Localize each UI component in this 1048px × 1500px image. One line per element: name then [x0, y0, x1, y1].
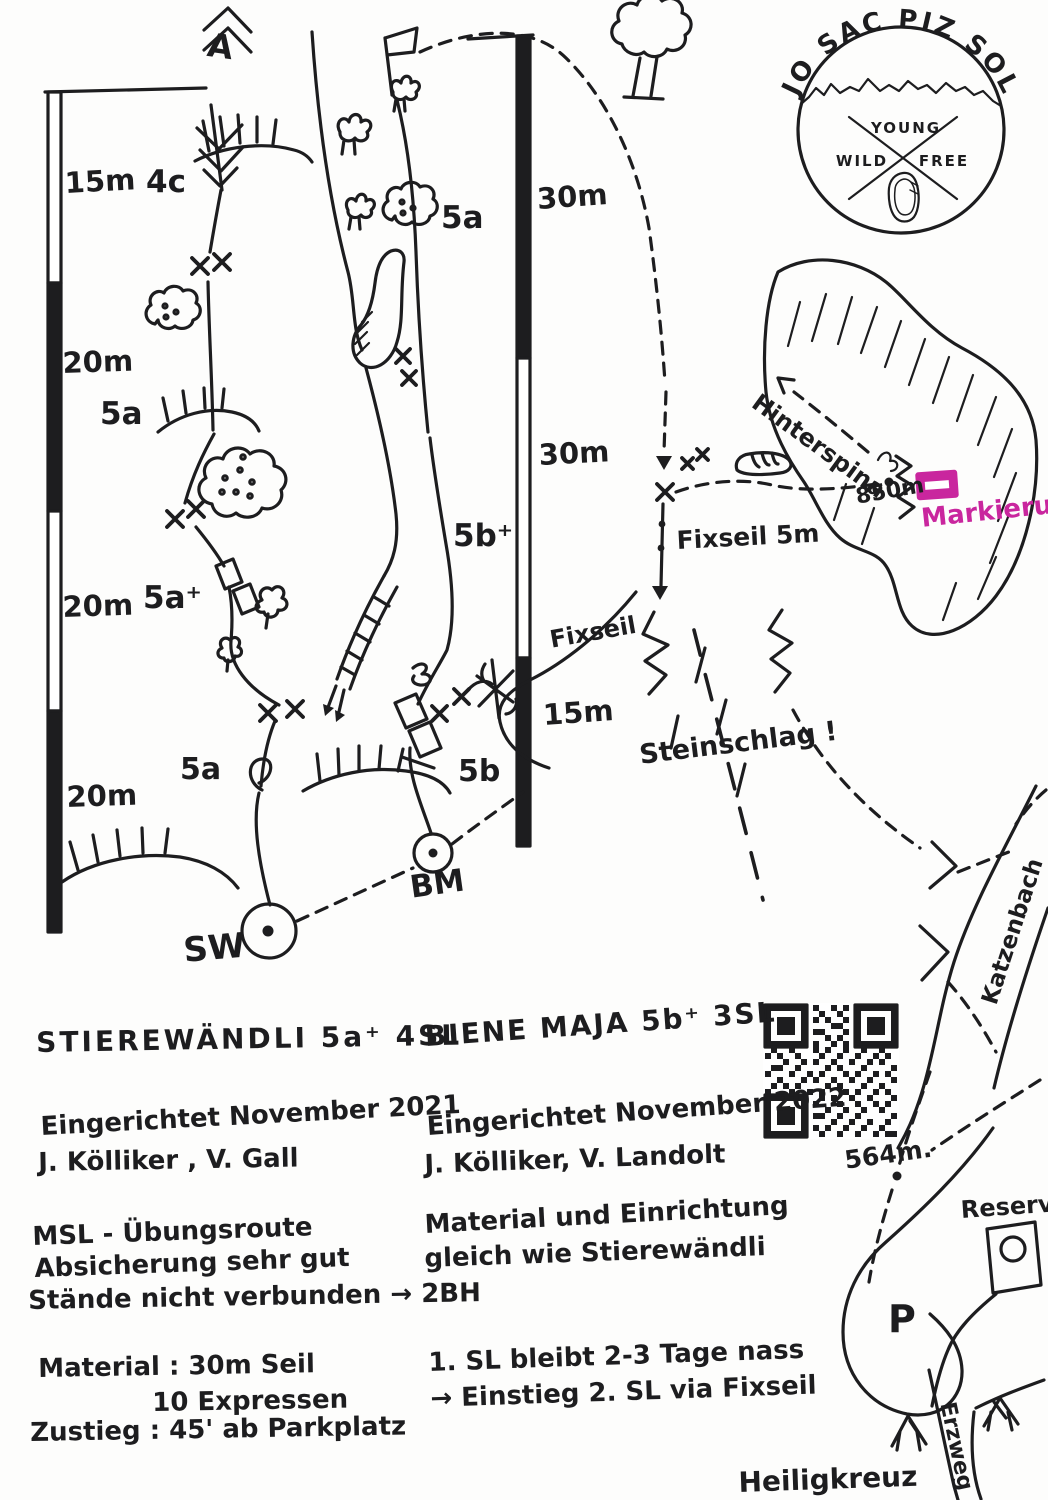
katzenbach-stream	[898, 786, 1048, 1148]
route-start-label-bm: BM	[408, 864, 466, 904]
scale-left-label-3: 20m	[62, 590, 134, 623]
scale-left-label-1: 15m	[64, 164, 136, 198]
fixed-rope-5m	[652, 504, 668, 600]
logo-wild-text: WILD	[836, 152, 888, 170]
route-line-stierewaendli	[185, 190, 279, 905]
grade-label-5b-plus: 5b⁺	[453, 520, 513, 553]
squiggle-mark	[413, 664, 431, 685]
flower-icon	[218, 587, 287, 671]
club-logo: JO SAC PIZ SOL YOUNG WILD FREE	[776, 5, 1026, 233]
approach-dashed-base	[297, 792, 523, 921]
stierewaendli-title: STIEREWÄNDLI 5a⁺ 4SL	[36, 1021, 462, 1058]
dead-tree-icon	[468, 660, 516, 718]
logo-free-text: FREE	[919, 152, 969, 170]
reservoir-icon	[987, 1222, 1041, 1293]
grass-ledge-bottom-left	[62, 828, 238, 888]
grade-label-5a-p1: 5a	[180, 754, 221, 786]
bush-small-icon	[146, 286, 200, 328]
route-start-label-sw: SW	[182, 929, 247, 970]
climbing-topo-page: JO SAC PIZ SOL YOUNG WILD FREE	[0, 0, 1048, 1500]
logo-arc-text: JO SAC PIZ SOL	[776, 5, 1026, 103]
scale-left-label-2: 20m	[62, 346, 134, 379]
logo-young-text: YOUNG	[870, 119, 941, 137]
scale-right-label-1: 30m	[536, 179, 609, 214]
topout-a-label: A	[205, 28, 235, 66]
logo-arc-textpath: JO SAC PIZ SOL	[776, 5, 1026, 103]
scale-right-label-2: 30m	[538, 436, 610, 470]
carabiner-icon	[889, 173, 919, 222]
caterpillar-log-icon	[736, 453, 791, 475]
logo-ridge-line	[801, 79, 1001, 106]
parking-label: P	[888, 1300, 916, 1340]
grade-label-4c: 4c	[146, 166, 186, 199]
scale-left-label-4: 20m	[66, 780, 138, 813]
stierewaendli-team: J. Kölliker , V. Gall	[38, 1145, 299, 1177]
qr-code	[763, 1003, 899, 1139]
stierewaendli-zustieg: Zustieg : 45' ab Parkplatz	[30, 1413, 406, 1447]
quickdraw-blocks-left	[216, 559, 259, 614]
grade-label-5b: 5b	[458, 756, 500, 788]
grade-label-5a-mid: 5a	[441, 202, 484, 235]
reservoir-label: Reservoir	[960, 1189, 1048, 1223]
stierewaendli-material-1: Material : 30m Seil	[38, 1351, 315, 1383]
route-start-sw	[242, 904, 296, 958]
bush-large-icon	[199, 448, 286, 517]
heiligkreuz-label: Heiligkreuz	[738, 1462, 918, 1498]
summit-flag-icon	[385, 28, 417, 95]
grade-label-5a-plus: 5a⁺	[143, 582, 202, 615]
tree-icon	[612, 0, 691, 99]
hatched-ramp	[323, 576, 397, 722]
overhang-ledge-mid	[158, 388, 259, 432]
scale-right-label-3: 15m	[542, 695, 615, 730]
grade-label-5a-p3: 5a	[100, 398, 143, 431]
